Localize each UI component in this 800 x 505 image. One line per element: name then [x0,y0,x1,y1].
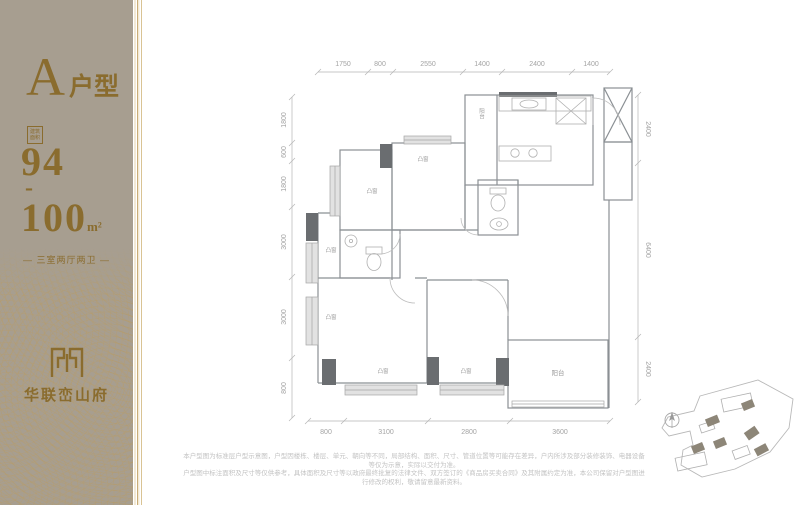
dimension-chain-right [635,92,641,405]
site-buildings-highlighted [691,399,769,456]
compass-icon [665,412,679,428]
dim-label: 3000 [281,234,288,250]
bathroom-fixtures [345,188,508,271]
dimension-chain-bottom [305,418,613,424]
room-labels: 凸窗 凸窗 凸窗 凸窗 凸窗 凸窗 阳台 阳台 [325,107,564,377]
dim-label: 3600 [552,429,568,436]
room-label-bay-window: 凸窗 [460,367,472,375]
site-key-plan [662,380,793,477]
disclaimer-block: 本户型图为标准层户型示意图，户型因楼栋、楼层、单元、朝向等不同，局部结构、面积、… [183,453,645,487]
room-label-bay-window: 凸窗 [377,367,389,375]
room-label-balcony: 阳台 [552,368,565,377]
door-swings [380,98,620,316]
dimension-labels-left: 1800 600 1800 3000 3000 800 [281,112,288,394]
dimension-chain-left [289,94,295,421]
dimension-labels-right: 2400 6400 2400 [644,121,651,377]
dim-label: 800 [320,429,332,436]
dim-label: 1400 [474,61,490,68]
dim-label: 800 [374,61,386,68]
dimension-labels-top: 1750 800 2550 1400 2400 1400 [335,61,599,68]
dim-label: 1800 [281,112,288,128]
room-label-bay-window: 凸窗 [366,187,378,195]
room-label-bay-window: 凸窗 [325,246,337,254]
dim-label: 1800 [281,176,288,192]
floor-plan-walls [318,88,632,408]
kitchen-fixtures [499,96,591,161]
disclaimer-line1: 本户型图为标准层户型示意图，户型因楼栋、楼层、单元、朝向等不同，局部结构、面积、… [183,453,645,470]
dim-label: 3100 [378,429,394,436]
room-label-bay-window: 凸窗 [325,313,337,321]
dimension-labels-bottom: 800 3100 2800 3600 [320,429,568,436]
dim-label: 800 [281,382,288,394]
bay-windows [306,136,604,407]
floor-plan-canvas: 1750 800 2550 1400 2400 1400 800 3100 28… [0,0,800,505]
dim-label: 2400 [644,121,651,137]
dim-label: 2800 [461,429,477,436]
dim-label: 3000 [281,309,288,325]
room-label-balcony-top: 阳台 [478,107,485,121]
disclaimer-line2: 户型图中标注面积及尺寸等仅供参考，具体面积及尺寸等以政府最终批复的法律文件、双方… [183,470,645,487]
room-label-bay-window: 凸窗 [417,155,429,163]
dim-label: 2550 [420,61,436,68]
dim-label: 1750 [335,61,351,68]
dim-label: 2400 [644,361,651,377]
dim-label: 600 [281,146,288,158]
dim-label: 2400 [529,61,545,68]
dim-label: 6400 [644,242,651,258]
dimension-chain-top [315,69,613,75]
dim-label: 1400 [583,61,599,68]
